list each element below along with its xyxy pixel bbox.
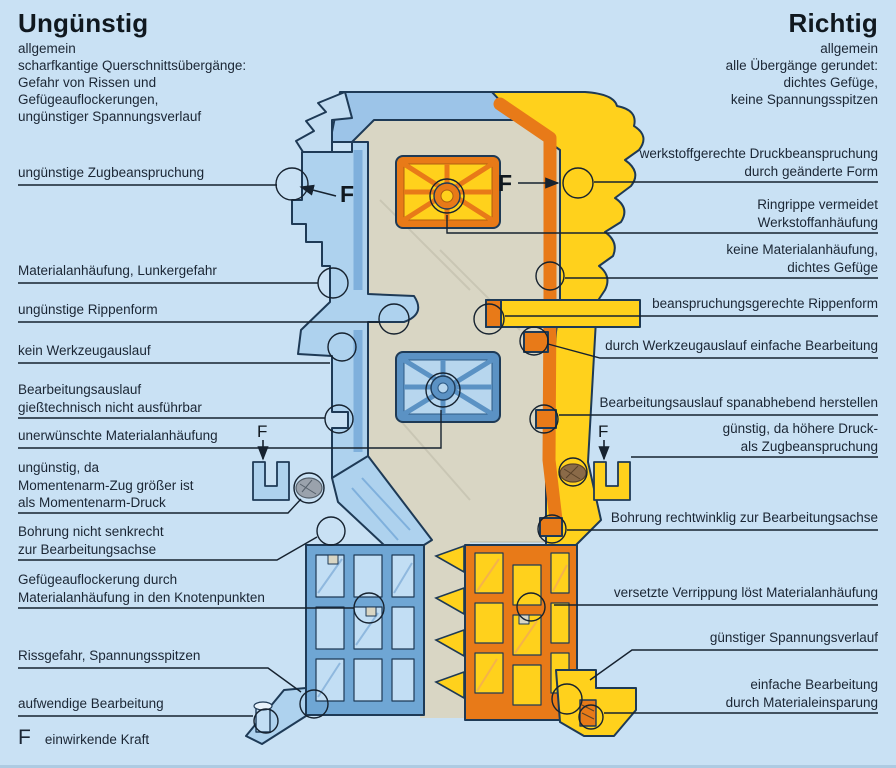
blue-lattice-aligned-ribs [246, 545, 424, 744]
label-versetzte-verrippung: versetzte Verrippung löst Materialanhäuf… [614, 584, 878, 602]
label-aufwendige-bearbeitung: aufwendige Bearbeitung [18, 695, 164, 713]
force-label-mid-right: F [598, 422, 608, 441]
label-druckbeanspruchung: werkstoffgerechte Druckbeanspruchung dur… [640, 145, 878, 180]
label-lunkergefahr: Materialanhäufung, Lunkergefahr [18, 262, 217, 280]
label-spannungsverlauf: günstiger Spannungsverlauf [710, 629, 878, 647]
force-label-mid-left: F [257, 422, 267, 441]
force-legend: F einwirkende Kraft [18, 726, 149, 750]
intro-unguenstig: allgemein scharfkantige Querschnittsüber… [18, 40, 246, 125]
force-legend-text: einwirkende Kraft [45, 732, 149, 747]
heading-richtig: Richtig [788, 8, 878, 39]
orange-lattice-staggered-ribs [465, 545, 636, 736]
diagram-casting-design: F F F F Ungünstig allgemein scharfkantig… [0, 0, 896, 768]
heading-unguenstig: Ungünstig [18, 8, 148, 39]
label-momentenarm: ungünstig, da Momentenarm-Zug größer ist… [18, 459, 194, 512]
label-ringrippe: Ringrippe vermeidet Werkstoffanhäufung [757, 196, 878, 231]
top-cross-rib-panel-orange [396, 156, 500, 228]
label-werkzeugauslauf-einfach: durch Werkzeugauslauf einfache Bearbeitu… [605, 337, 878, 355]
force-label-top-left: F [340, 181, 354, 207]
label-bearbeitungsauslauf-giess: Bearbeitungsauslauf gießtechnisch nicht … [18, 381, 202, 416]
label-materialeinsparung: einfache Bearbeitung durch Materialeinsp… [726, 676, 878, 711]
label-rippenform-unguenstig: ungünstige Rippenform [18, 301, 158, 319]
label-kein-werkzeugauslauf: kein Werkzeugauslauf [18, 342, 151, 360]
intro-richtig: allgemein alle Übergänge gerundet: dicht… [726, 40, 878, 108]
middle-cross-rib-panel-blue [396, 352, 500, 422]
label-bohrung-nicht-senkrecht: Bohrung nicht senkrecht zur Bearbeitungs… [18, 523, 164, 558]
label-gefuegeauflockerung: Gefügeauflockerung durch Materialanhäufu… [18, 571, 265, 606]
label-rippenform-richtig: beanspruchungsgerechte Rippenform [652, 295, 878, 313]
label-spanabhebend: Bearbeitungsauslauf spanabhebend herstel… [600, 394, 878, 412]
label-rissgefahr: Rissgefahr, Spannungsspitzen [18, 647, 200, 665]
label-bohrung-rechtwinklig: Bohrung rechtwinklig zur Bearbeitungsach… [611, 509, 878, 527]
label-zugbeanspruchung: ungünstige Zugbeanspruchung [18, 164, 204, 182]
force-legend-symbol: F [18, 726, 31, 750]
force-label-top-right: F [498, 170, 512, 196]
label-keine-materialanhaeufung: keine Materialanhäufung, dichtes Gefüge [726, 241, 878, 276]
label-guenstig-druck: günstig, da höhere Druck- als Zugbeanspr… [723, 420, 878, 455]
label-unerwuenschte-materialanhaeufung: unerwünschte Materialanhäufung [18, 427, 218, 445]
